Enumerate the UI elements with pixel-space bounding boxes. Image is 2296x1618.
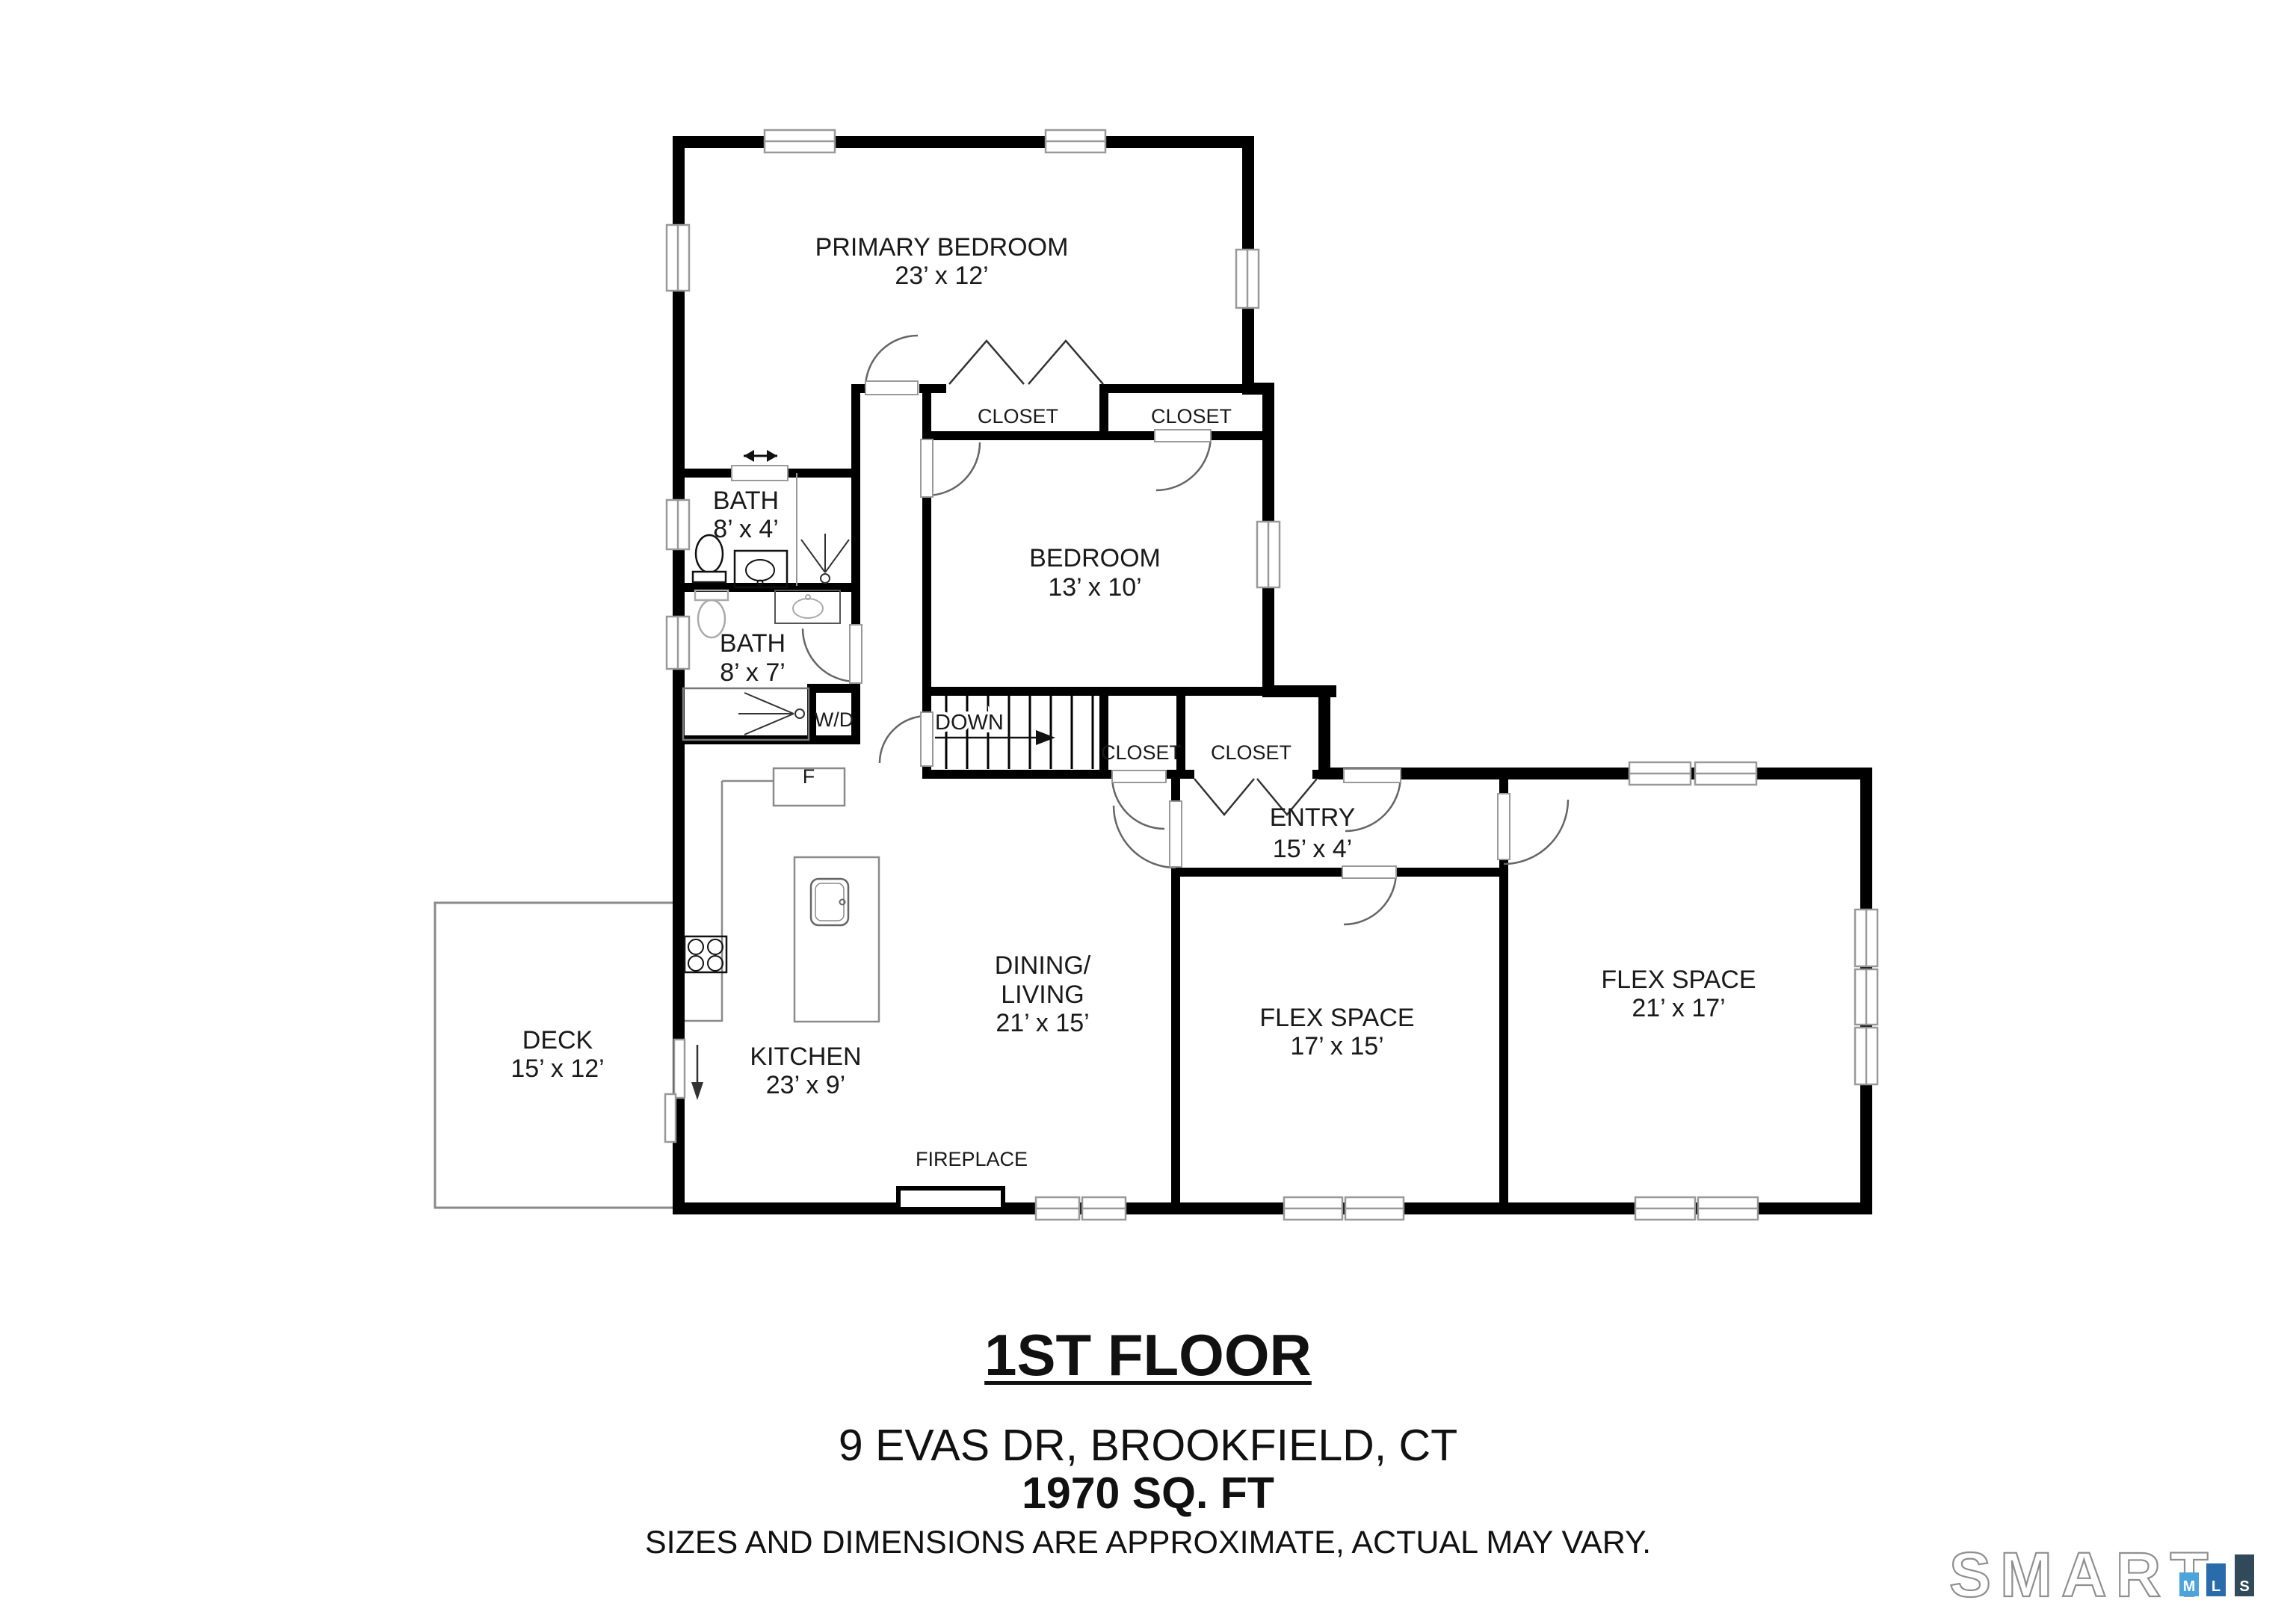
logo-letter-m: M: [2183, 1578, 2196, 1595]
dims-primary-bedroom: 23’ x 12’: [895, 262, 988, 290]
label-bedroom: BEDROOM: [1029, 544, 1161, 572]
dims-dining-living: 21’ x 15’: [996, 1009, 1089, 1037]
label-dining-living-1: DINING/: [995, 951, 1091, 980]
door-arc-closet-top: [1156, 436, 1211, 490]
label-closet-1: CLOSET: [978, 405, 1058, 427]
label-washer-dryer: W/D: [815, 708, 854, 731]
door-arc-entry-dining: [1114, 806, 1176, 868]
logo-letter-l: L: [2212, 1578, 2221, 1595]
label-flex-space-1: FLEX SPACE: [1259, 1004, 1414, 1032]
label-closet-4: CLOSET: [1211, 741, 1291, 764]
door-arc-closet-small: [1112, 776, 1164, 829]
door-arc-entry-flex1: [1344, 872, 1396, 924]
bifold-primary-closet: [949, 341, 1103, 384]
label-closet-2: CLOSET: [1151, 405, 1232, 427]
fireplace-box: [898, 1188, 1003, 1209]
label-kitchen: KITCHEN: [750, 1043, 861, 1071]
label-fireplace: FIREPLACE: [916, 1148, 1028, 1170]
floor-title: 1ST FLOOR: [0, 1321, 2296, 1389]
label-bath-upper: BATH: [713, 487, 779, 515]
property-address: 9 EVAS DR, BROOKFIELD, CT: [0, 1420, 2296, 1471]
floor-title-text: 1ST FLOOR: [984, 1322, 1312, 1388]
label-dining-living-2: LIVING: [1001, 981, 1084, 1009]
logo-letter-s: S: [2239, 1578, 2249, 1595]
dims-entry: 15’ x 4’: [1273, 835, 1352, 863]
label-deck: DECK: [522, 1026, 593, 1055]
door-arc-entry-flex2: [1504, 800, 1568, 864]
door-arc-bath-lower: [803, 629, 856, 682]
kitchen-fixtures: [685, 768, 879, 1022]
dims-deck: 15’ x 12’: [510, 1055, 604, 1083]
dims-bath-upper: 8’ x 4’: [713, 515, 779, 543]
pocket-door: [732, 450, 788, 481]
door-arc-bedroom: [927, 442, 980, 495]
kitchen-island: [794, 857, 879, 1022]
label-closet-3: CLOSET: [1101, 741, 1182, 764]
door-leaves: [850, 381, 1510, 878]
disclaimer-text: SIZES AND DIMENSIONS ARE APPROXIMATE, AC…: [0, 1525, 2296, 1561]
label-primary-bedroom: PRIMARY BEDROOM: [815, 233, 1069, 262]
dims-flex-space-1: 17’ x 15’: [1290, 1032, 1383, 1060]
dims-bath-lower: 8’ x 7’: [720, 658, 786, 687]
dims-kitchen: 23’ x 9’: [766, 1071, 845, 1099]
door-arc-primary-bedroom: [865, 336, 918, 388]
door-arc-stairs: [880, 716, 927, 763]
label-flex-space-2: FLEX SPACE: [1601, 966, 1756, 994]
stairs-label: DOWN: [935, 711, 1004, 735]
dims-bedroom: 13’ x 10’: [1048, 573, 1141, 602]
label-entry: ENTRY: [1270, 803, 1356, 832]
label-refrigerator: F: [803, 765, 815, 788]
label-bath-lower: BATH: [720, 629, 786, 658]
stairs-down: DOWN: [935, 696, 1093, 769]
square-footage: 1970 SQ. FT: [0, 1468, 2296, 1519]
floor-plan-page: DOWN: [0, 0, 2296, 1618]
dims-flex-space-2: 21’ x 17’: [1632, 994, 1725, 1022]
